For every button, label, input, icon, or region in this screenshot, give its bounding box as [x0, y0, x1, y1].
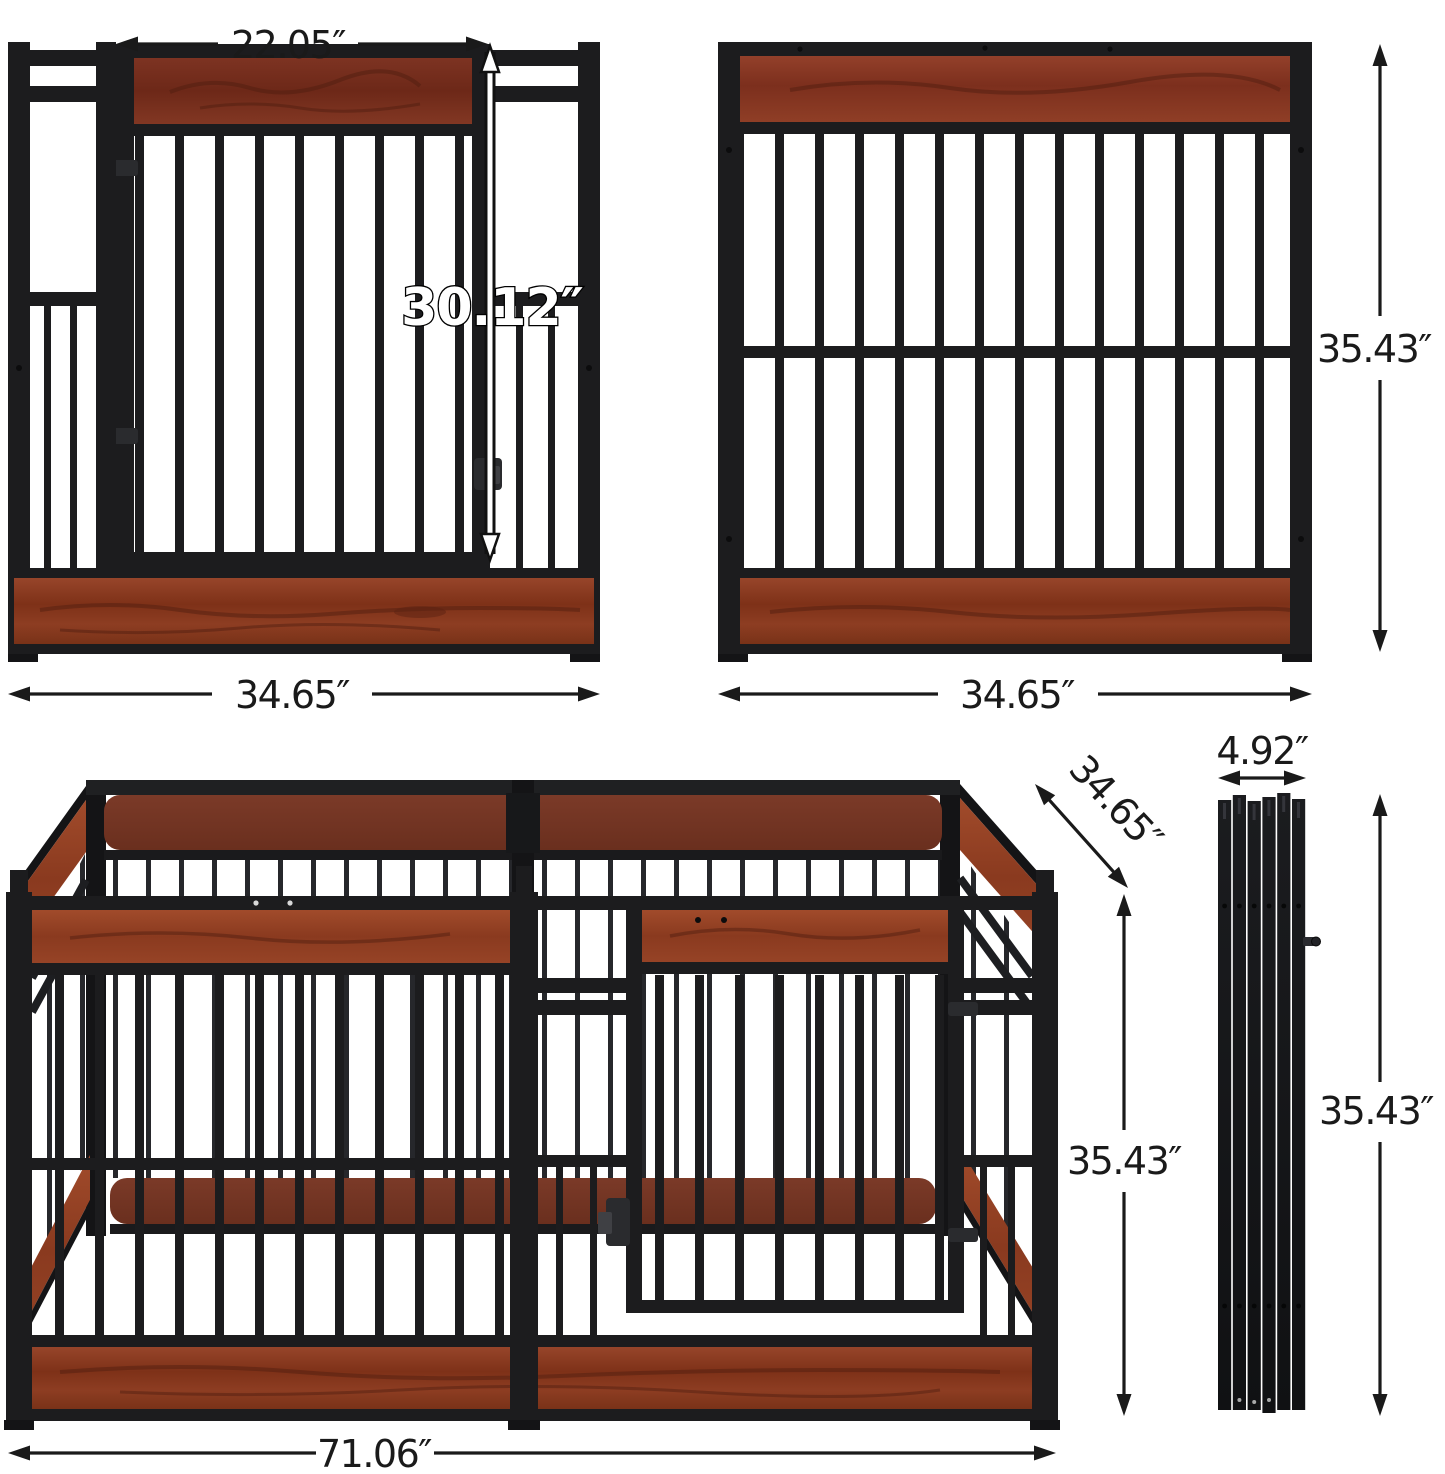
door-stile: [626, 896, 642, 1313]
rung: [30, 86, 96, 102]
front-bars-field: [32, 975, 510, 1158]
arrow-down-icon: [1373, 630, 1388, 652]
rail: [30, 292, 96, 306]
slat-notch: [1282, 796, 1285, 812]
diagram-svg: 22.05″ 34.65″ 34.65″ 35.43″ 30.12″ 34.65: [0, 0, 1445, 1474]
arrow-left-icon: [8, 687, 30, 702]
rail: [964, 1155, 1032, 1167]
dim-panel-width-right: 34.65″: [718, 673, 1312, 717]
arrow-up-icon: [1373, 44, 1388, 66]
screw-dot: [1298, 147, 1304, 153]
dim-folded-height-label: 35.43″: [1319, 1089, 1434, 1133]
rail: [740, 568, 1290, 578]
arrow-right-icon: [578, 687, 600, 702]
bar: [516, 306, 523, 572]
post: [6, 892, 32, 1422]
post: [718, 42, 740, 652]
top-wood-band: [740, 56, 1290, 122]
arrow-down-icon: [1373, 1394, 1388, 1416]
foot: [4, 1420, 34, 1430]
bar: [44, 306, 51, 572]
foot: [508, 1420, 540, 1430]
dim-panel-width-left-label: 34.65″: [235, 673, 350, 717]
screw-dot: [16, 365, 22, 371]
hinge: [948, 1002, 978, 1016]
slat-notch: [1253, 804, 1256, 820]
arrow-left-icon: [8, 1446, 30, 1461]
lower-bars-field: [740, 358, 1290, 568]
screw-dot: [695, 917, 701, 923]
assembled-pen-view: [4, 780, 1060, 1430]
post: [510, 892, 538, 1422]
screw-dot: [287, 900, 292, 905]
foot: [570, 654, 600, 662]
hinge: [948, 1228, 978, 1242]
dim-pen-width-label: 71.06″: [317, 1432, 432, 1474]
slat: [1218, 800, 1231, 1410]
door-bars-field: [134, 136, 472, 552]
screw-dot: [586, 365, 592, 371]
arrow-up-icon: [1117, 894, 1132, 916]
arrow-right-icon: [1290, 687, 1312, 702]
post: [96, 42, 116, 652]
bar: [548, 306, 555, 572]
door-bottom-rail: [626, 1300, 964, 1313]
dim-pen-height: 35.43″: [1067, 894, 1182, 1416]
slat: [1262, 797, 1275, 1413]
rail: [8, 644, 600, 654]
rail: [642, 962, 948, 974]
wood-knot: [394, 606, 446, 618]
slat: [1248, 801, 1261, 1410]
upper-bars-field: [740, 134, 1290, 346]
screw-dot: [253, 900, 258, 905]
dim-pen-width: 71.06″: [8, 1432, 1056, 1474]
arrow-up-icon: [1373, 794, 1388, 816]
foot: [718, 654, 748, 662]
dim-panel-width-right-label: 34.65″: [960, 673, 1075, 717]
rail: [134, 124, 472, 136]
dim-pen-height-label: 35.43″: [1067, 1139, 1182, 1183]
folded-stack-view: [1218, 793, 1321, 1413]
mid-rail: [740, 346, 1290, 358]
door-stile: [948, 896, 964, 1313]
rail: [538, 1155, 626, 1167]
dim-door-width-label: 22.05″: [231, 23, 346, 67]
post: [1290, 42, 1312, 652]
arrow-down-icon: [1117, 1394, 1132, 1416]
door-bottom-rail: [116, 552, 490, 570]
slat-notch: [1267, 800, 1270, 816]
product-dimension-diagram: 22.05″ 34.65″ 34.65″ 35.43″ 30.12″ 34.65: [0, 0, 1445, 1474]
screw-dot: [721, 917, 727, 923]
mid-rail: [32, 1158, 510, 1170]
bar: [556, 1167, 563, 1335]
plain-panel-view: [718, 42, 1312, 662]
slat-notch: [1238, 798, 1241, 814]
screw-dot: [726, 147, 732, 153]
rung: [538, 978, 626, 993]
foot: [1030, 1420, 1060, 1430]
bar: [1008, 1167, 1015, 1335]
slat-notch: [1223, 803, 1226, 819]
slat: [1277, 793, 1290, 1410]
bar: [70, 306, 77, 572]
arrow-left-icon: [718, 687, 740, 702]
rung: [538, 1000, 626, 1015]
dim-door-height-label: 30.12″: [401, 278, 583, 338]
dim-panel-height: 35.43″: [1317, 44, 1432, 652]
screw-dot: [1107, 46, 1112, 51]
slat-notch: [1297, 802, 1300, 818]
arrow-right-icon: [1034, 1446, 1056, 1461]
foot: [8, 654, 38, 662]
door-stile: [116, 44, 134, 570]
rail: [32, 963, 510, 975]
bottom-wood-band: [14, 578, 594, 644]
foot: [1282, 654, 1312, 662]
stack-pin: [1312, 937, 1321, 946]
back-bracket: [506, 793, 540, 853]
post-cap: [516, 866, 532, 896]
dim-folded-width: 4.92″: [1216, 729, 1309, 786]
screw-dot: [1298, 536, 1304, 542]
rung: [490, 86, 578, 102]
dim-panel-height-label: 35.43″: [1317, 327, 1432, 371]
bar: [980, 1167, 987, 1335]
rail: [740, 122, 1290, 134]
dim-panel-width-left: 34.65″: [8, 673, 600, 717]
post: [8, 42, 30, 652]
rung: [490, 50, 578, 66]
door-panel-view: [8, 42, 600, 662]
door-bars-field: [642, 975, 948, 1300]
screw-dot: [726, 536, 732, 542]
screw-dot: [797, 46, 802, 51]
front-bars-field: [32, 1170, 510, 1335]
slat: [1292, 799, 1305, 1410]
dim-pen-depth-label: 34.65″: [1061, 746, 1172, 860]
dim-pen-depth: 34.65″: [1035, 746, 1171, 888]
top-rail: [740, 42, 1290, 56]
screw-dot: [982, 45, 987, 50]
post: [1032, 892, 1058, 1422]
slat: [1233, 795, 1246, 1410]
rung: [964, 978, 1032, 993]
dim-folded-height: 35.43″: [1319, 794, 1434, 1416]
rail: [718, 644, 1312, 654]
post: [578, 42, 600, 652]
dim-folded-width-label: 4.92″: [1216, 729, 1309, 773]
bar: [590, 1167, 597, 1335]
latch: [598, 1212, 612, 1234]
rung: [30, 50, 96, 66]
